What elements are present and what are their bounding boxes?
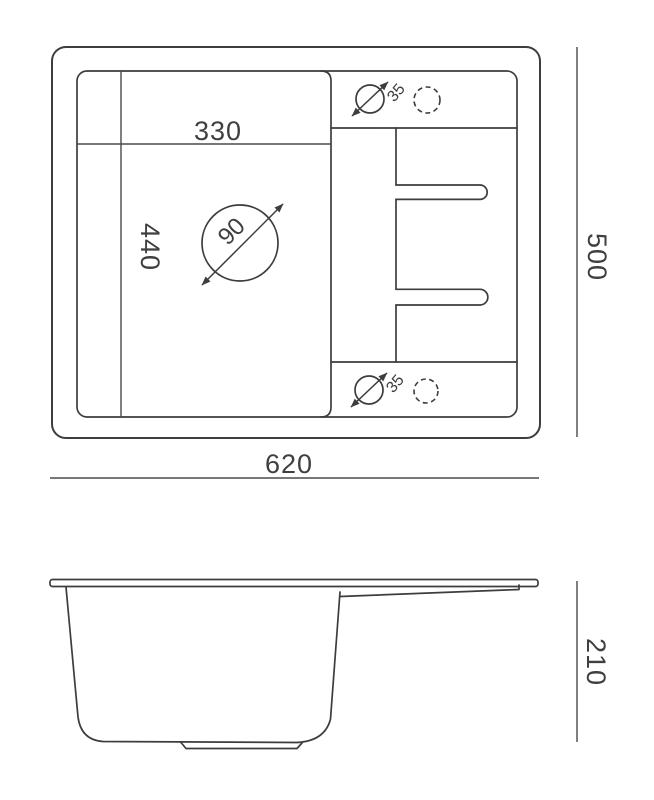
drain-diameter-label: 90: [213, 213, 251, 251]
tap-hole-top-alt-dashed-circle: [414, 87, 440, 113]
drain-hole-circle: [202, 205, 278, 281]
tap-hole-top-diameter-arrow: [352, 82, 388, 116]
bowl-depth-dim-label: 440: [135, 223, 165, 271]
technical-drawing-canvas: 330 440 90 35 35 500 620: [0, 0, 654, 800]
tap-hole-bottom-alt-dashed-circle: [414, 379, 438, 403]
bowl-width-dim-label: 330: [194, 116, 242, 146]
sink-drawing-svg: 330 440 90 35 35 500 620: [0, 0, 654, 800]
outer-rim-outline: [52, 47, 540, 438]
drain-foot-profile: [181, 743, 302, 749]
drainer-groove-bottom: [396, 289, 488, 305]
overall-depth-dim-label: 500: [582, 233, 612, 281]
tap-hole-top-diameter-label: 35: [384, 81, 409, 106]
overall-width-dim-label: 620: [265, 449, 313, 479]
top-view: 330 440 90 35 35 500 620: [50, 47, 612, 479]
bowl-divider-line: [321, 71, 331, 417]
tap-hole-bottom-diameter-label: 35: [383, 372, 408, 397]
bowl-profile: [66, 587, 340, 743]
height-dim-label: 210: [581, 638, 611, 686]
drainer-groove-top: [396, 185, 487, 199]
side-view: 210: [50, 580, 611, 749]
tap-hole-bottom-diameter-arrow: [351, 373, 387, 407]
countertop-rim-profile: [50, 580, 538, 587]
